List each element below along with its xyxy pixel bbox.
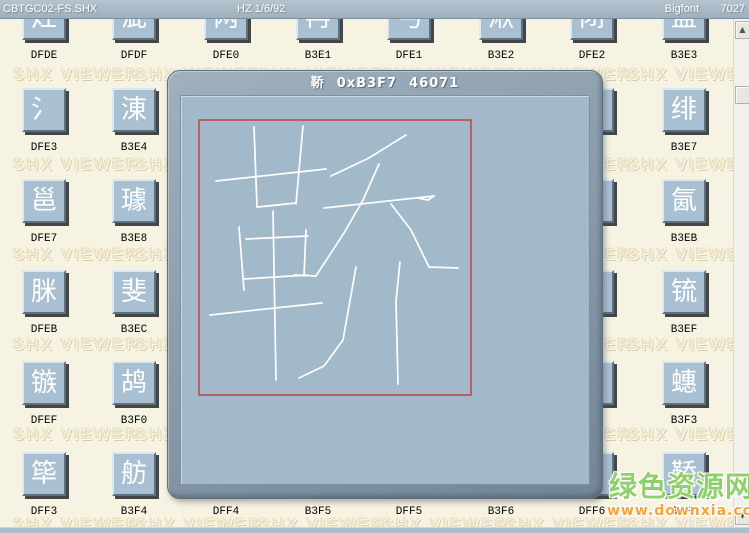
glyph-stroke [273, 211, 276, 380]
glyph-code-label: B3F7 [656, 507, 712, 517]
shx-viewer-window: SHX VIEWERSHX VIEWERSHX VIEWERSHX VIEWER… [0, 0, 749, 533]
glyph-code-label: B3EF [656, 325, 712, 335]
scroll-down-icon: ▼ [739, 511, 745, 520]
encoding-label: HZ 1/6/92 [237, 1, 285, 18]
glyph-tile-b3eb[interactable]: 氤 [662, 179, 706, 223]
scroll-down-button[interactable]: ▼ [735, 507, 749, 525]
glyph-code-label: DFE2 [564, 51, 620, 61]
glyph-count: 7027 [721, 1, 745, 18]
glyph-code-label: DFF6 [564, 507, 620, 517]
glyph-code-label: B3E1 [290, 51, 346, 61]
glyph-stroke [391, 204, 458, 268]
glyph-code-label: B3EC [106, 325, 162, 335]
glyph-tile-dfeb[interactable]: 脒 [22, 270, 66, 314]
glyph-stroke [246, 236, 308, 239]
glyph-tile-b3e7[interactable]: 绯 [662, 88, 706, 132]
glyph-preview-canvas [180, 95, 590, 485]
glyph-tile-b3f0[interactable]: 鸪 [112, 361, 156, 405]
dialog-code-hex: 0xB3F7 [337, 76, 397, 91]
vertical-scrollbar[interactable]: ▲ ▼ [733, 19, 749, 527]
glyph-stroke [254, 127, 257, 207]
glyph-code-label: DFE7 [16, 234, 72, 244]
glyph-code-label: B3F5 [290, 507, 346, 517]
glyph-code-label: B3F0 [106, 416, 162, 426]
glyph-code-label: B3E4 [106, 143, 162, 153]
dialog-title-bar[interactable]: 鞒0xB3F746071 [168, 75, 602, 93]
glyph-code-label: DFE1 [381, 51, 437, 61]
glyph-code-label: B3F3 [656, 416, 712, 426]
glyph-code-label: DFF4 [198, 507, 254, 517]
font-type-label: Bigfont [665, 1, 699, 18]
glyph-stroke [210, 303, 322, 315]
scroll-up-icon: ▲ [739, 25, 745, 34]
glyph-code-label: DFE3 [16, 143, 72, 153]
glyph-bounding-box [199, 120, 471, 395]
glyph-tile-b3ec[interactable]: 斐 [112, 270, 156, 314]
toolbar: CBTGC02-FS.SHX HZ 1/6/92 Bigfont 7027 [0, 0, 749, 19]
glyph-code-label: DFEF [16, 416, 72, 426]
scrollbar-thumb[interactable] [735, 86, 749, 104]
glyph-stroke [299, 267, 356, 378]
glyph-stroke [396, 262, 400, 384]
glyph-stroke [239, 227, 244, 290]
glyph-code-label: DFEB [16, 325, 72, 335]
glyph-tile-b3e4[interactable]: 涷 [112, 88, 156, 132]
glyph-tile-dff3[interactable]: 筚 [22, 452, 66, 496]
scroll-up-button[interactable]: ▲ [735, 21, 749, 39]
glyph-preview-dialog: 鞒0xB3F746071 [167, 70, 603, 499]
glyph-stroke [216, 169, 326, 181]
glyph-code-label: DFF5 [381, 507, 437, 517]
glyph-code-label: B3F6 [473, 507, 529, 517]
glyph-code-label: DFDF [106, 51, 162, 61]
glyph-tile-dfe7[interactable]: 邕 [22, 179, 66, 223]
glyph-code-label: DFF3 [16, 507, 72, 517]
window-bottom-edge [0, 527, 749, 533]
shx-file-name: CBTGC02-FS.SHX [3, 1, 97, 18]
glyph-code-label: B3EB [656, 234, 712, 244]
glyph-code-label: DFDE [16, 51, 72, 61]
glyph-code-label: B3E3 [656, 51, 712, 61]
glyph-tile-dfe3[interactable]: 氵 [22, 88, 66, 132]
dialog-code-decimal: 46071 [409, 76, 459, 91]
glyph-code-label: DFE0 [198, 51, 254, 61]
glyph-tile-b3ef[interactable]: 锍 [662, 270, 706, 314]
glyph-stroke [331, 135, 406, 176]
glyph-code-label: B3E2 [473, 51, 529, 61]
glyph-tile-b3e8[interactable]: 璩 [112, 179, 156, 223]
glyph-stroke [296, 126, 303, 204]
glyph-code-label: B3F4 [106, 507, 162, 517]
glyph-code-label: B3E7 [656, 143, 712, 153]
glyph-stroke [294, 164, 379, 276]
glyph-code-label: B3E8 [106, 234, 162, 244]
glyph-tile-b3f4[interactable]: 舫 [112, 452, 156, 496]
glyph-tile-b3f3[interactable]: 蟪 [662, 361, 706, 405]
glyph-stroke [258, 203, 296, 207]
glyph-stroke-drawing [181, 96, 589, 484]
glyph-tile-b3f7[interactable]: 鞒 [662, 452, 706, 496]
dialog-character: 鞒 [311, 76, 325, 91]
glyph-tile-dfef[interactable]: 镞 [22, 361, 66, 405]
